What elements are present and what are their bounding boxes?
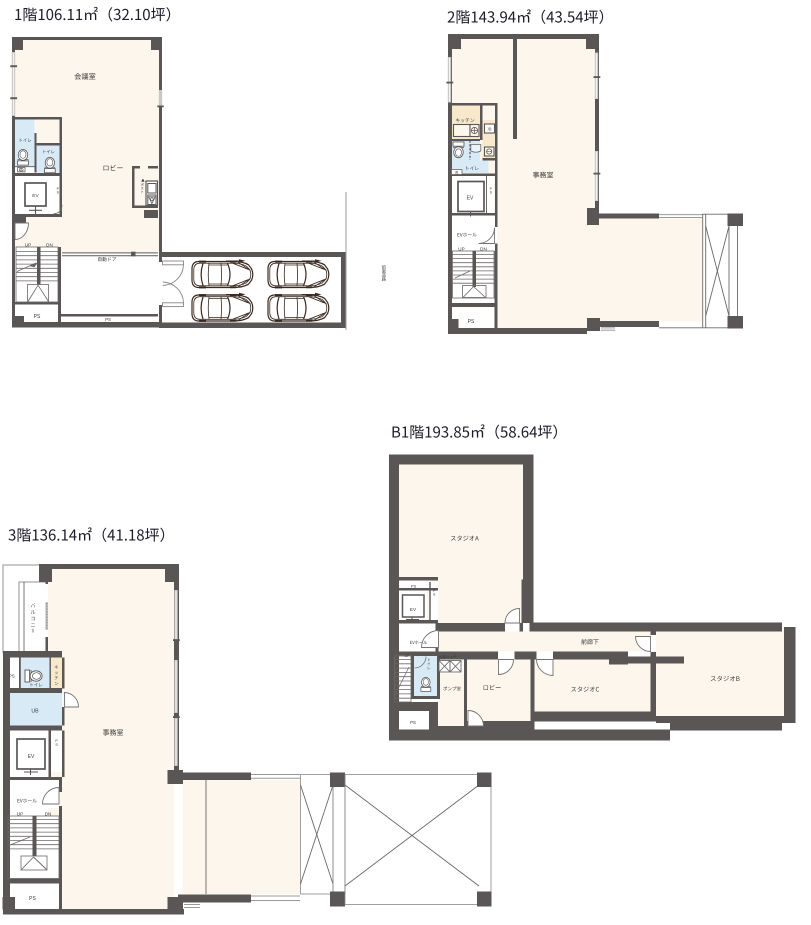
svg-text:PS: PS [105, 317, 111, 322]
svg-text:PS: PS [34, 314, 41, 320]
svg-text:EV: EV [32, 193, 39, 199]
svg-text:PS: PS [468, 319, 475, 325]
svg-text:UP: UP [17, 812, 23, 817]
svg-text:DN: DN [45, 812, 52, 817]
svg-text:PS: PS [29, 896, 36, 902]
svg-text:UP: UP [25, 242, 31, 247]
svg-text:EV: EV [28, 754, 35, 760]
svg-text:PS: PS [410, 720, 416, 725]
svg-text:EV: EV [467, 195, 474, 201]
svg-text:DN: DN [480, 247, 487, 252]
svg-text:UP: UP [404, 654, 410, 658]
svg-text:UB: UB [31, 709, 39, 715]
svg-text:PS: PS [9, 674, 15, 679]
svg-text:EV: EV [410, 607, 417, 612]
svg-text:PS: PS [411, 584, 417, 589]
svg-text:UP: UP [458, 247, 464, 252]
svg-text:DN: DN [46, 242, 53, 247]
